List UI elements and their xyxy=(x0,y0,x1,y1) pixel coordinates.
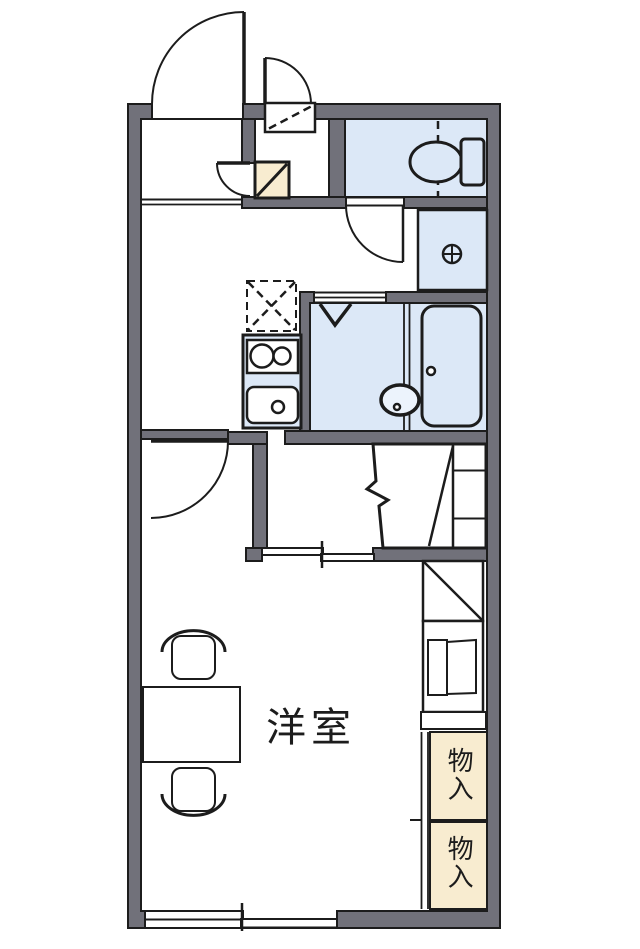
chair-top-seat xyxy=(172,636,215,679)
floor-plan-page: 洋室 物入 物入 xyxy=(0,0,640,949)
toilet-door-arc xyxy=(346,205,403,262)
bathtub-knob-icon xyxy=(427,367,435,375)
bed-outline xyxy=(367,444,486,548)
sliding-door-pane-left xyxy=(262,548,323,555)
storage-upper-label: 物入 xyxy=(444,747,473,803)
main-room-label: 洋室 xyxy=(266,695,356,753)
wall-kitchen-bottom-right xyxy=(285,431,487,444)
stove-burner-large xyxy=(251,345,274,368)
cabinet-column xyxy=(421,561,486,729)
window-pane-left xyxy=(145,911,243,920)
bath-sink-drain-icon xyxy=(394,404,400,410)
floor-plan-drawing xyxy=(0,0,640,949)
wall-bedroom-bottom-left xyxy=(246,548,262,561)
bathroom xyxy=(310,293,487,432)
wall-toilet-left xyxy=(329,119,345,197)
dining-set xyxy=(143,631,240,816)
bed-blanket-diagonal xyxy=(429,446,453,546)
entrance-door-arc xyxy=(152,12,244,104)
wall-room-door-header xyxy=(141,430,228,439)
toilet-bowl-icon xyxy=(410,142,462,182)
main-room-door xyxy=(151,441,228,518)
kitchen-sink-drain-icon xyxy=(272,401,284,413)
washing-machine-pan xyxy=(418,210,487,290)
wall-bedroom-bottom-right xyxy=(373,548,487,561)
table xyxy=(143,687,240,762)
bedroom-sliding-door xyxy=(262,541,374,568)
wall-toilet-bottom xyxy=(404,197,487,208)
cabinet-shelf-bar xyxy=(421,712,486,729)
bath-sink xyxy=(381,385,419,415)
storage-lower-label: 物入 xyxy=(444,835,473,891)
bottom-window xyxy=(145,903,337,931)
bed xyxy=(367,444,486,548)
genkan xyxy=(217,162,289,198)
chair-bottom-seat xyxy=(172,768,215,811)
hall-threshold xyxy=(141,200,242,205)
stove-burner-small xyxy=(274,348,291,365)
cabinet-inner-left xyxy=(428,640,447,695)
wall-bathroom-top xyxy=(386,292,487,303)
wall-bedroom-left xyxy=(253,444,267,548)
hall-door-arc xyxy=(217,163,250,196)
wall-hall-genkan xyxy=(242,119,255,163)
main-room-door-arc xyxy=(151,441,228,518)
entrance-door xyxy=(152,12,244,104)
sliding-door-pane-right xyxy=(321,554,374,561)
window-pane-right xyxy=(241,919,337,928)
wall-kitchen-bottom-left xyxy=(228,432,267,444)
kitchen xyxy=(243,281,301,428)
service-door-arc xyxy=(265,58,311,104)
toilet-door-closed xyxy=(346,198,404,206)
service-door xyxy=(265,58,315,132)
toilet-tank-icon xyxy=(461,139,484,185)
